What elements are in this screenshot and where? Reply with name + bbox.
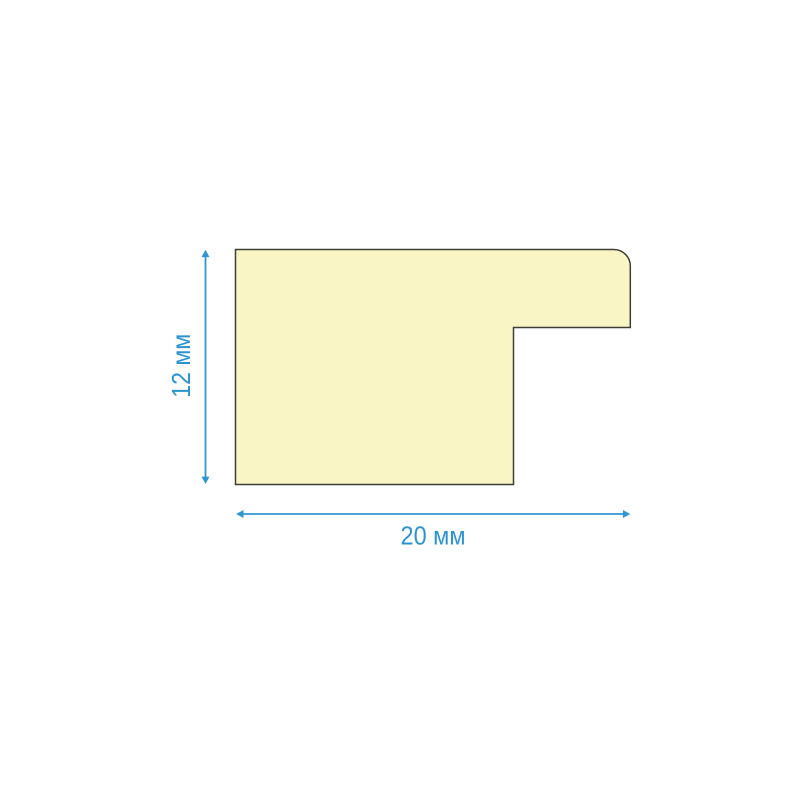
- svg-text:20 мм: 20 мм: [401, 520, 466, 550]
- svg-text:12 мм: 12 мм: [166, 334, 196, 398]
